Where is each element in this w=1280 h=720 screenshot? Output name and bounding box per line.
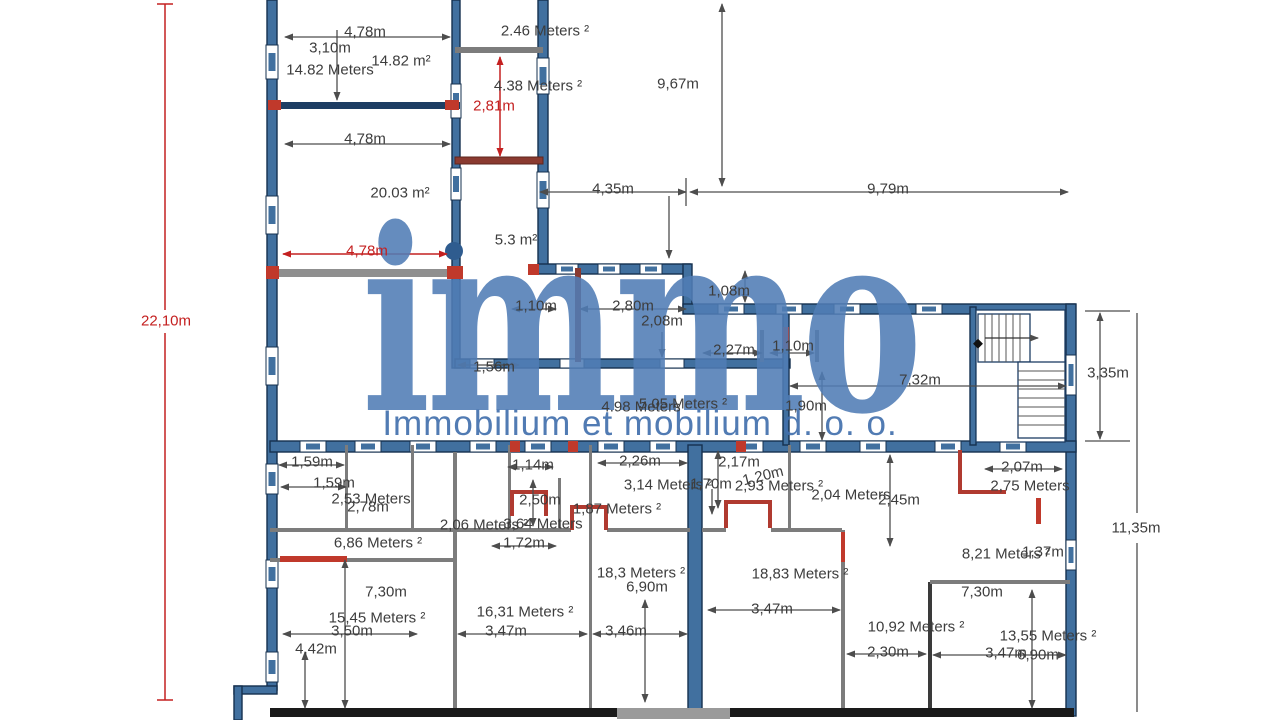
dimension-label: 22,10m bbox=[141, 314, 191, 329]
dimension-label: 9,79m bbox=[867, 182, 909, 197]
dimension-label: 2,07m bbox=[1001, 460, 1043, 475]
dimension-label: 1,72m bbox=[503, 536, 545, 551]
dimension-label: 2,26m bbox=[619, 454, 661, 469]
dimension-label: 2,81m bbox=[473, 99, 515, 114]
dimension-label: 7,30m bbox=[961, 585, 1003, 600]
dimension-label: 7,30m bbox=[365, 585, 407, 600]
dimension-label: 2,08m bbox=[641, 314, 683, 329]
dimension-label: 13,55 Meters ² bbox=[1000, 629, 1097, 644]
dimension-label: 3,47m bbox=[485, 624, 527, 639]
dimension-label: 1,59m bbox=[291, 455, 333, 470]
dimension-label: 2,75 Meters bbox=[990, 479, 1069, 494]
dimension-label: 2,27m bbox=[713, 343, 755, 358]
dimension-label: 18,83 Meters ² bbox=[752, 567, 849, 582]
dimension-label: 2,30m bbox=[867, 645, 909, 660]
dimension-label: 9,67m bbox=[657, 77, 699, 92]
dimension-label: 2,78m bbox=[347, 500, 389, 515]
measurement-labels: 4,78m3,10m14.82 m²14.82 Meters2.46 Meter… bbox=[0, 0, 1280, 720]
dimension-label: 7,32m bbox=[899, 373, 941, 388]
dimension-label: 11,35m bbox=[1112, 521, 1161, 536]
dimension-label: 3,47m bbox=[751, 602, 793, 617]
dimension-label: 6,90m bbox=[1017, 648, 1059, 663]
dimension-label: 4,78m bbox=[346, 244, 388, 259]
dimension-label: 1,70m bbox=[690, 477, 732, 492]
dimension-label: 1,37m bbox=[1022, 545, 1064, 560]
dimension-label: 14.82 m² bbox=[371, 54, 430, 69]
dimension-label: 1,56m bbox=[473, 360, 515, 375]
dimension-label: 3,50m bbox=[331, 624, 373, 639]
dimension-label: 5.3 m² bbox=[495, 233, 538, 248]
dimension-label: 6,86 Meters ² bbox=[334, 536, 422, 551]
dimension-label: 14.82 Meters bbox=[286, 63, 374, 78]
dimension-label: 1,90m bbox=[785, 399, 827, 414]
dimension-label: 3,46m bbox=[605, 624, 647, 639]
dimension-label: 2,45m bbox=[878, 493, 920, 508]
dimension-label: 20.03 m² bbox=[370, 186, 429, 201]
dimension-label: 10,92 Meters ² bbox=[868, 620, 965, 635]
dimension-label: 2,17m bbox=[718, 455, 760, 470]
dimension-label: 4,35m bbox=[592, 182, 634, 197]
dimension-label: 3,35m bbox=[1087, 366, 1129, 381]
dimension-label: 4,78m bbox=[344, 132, 386, 147]
dimension-label: 1,10m bbox=[772, 339, 814, 354]
dimension-label: 1,08m bbox=[708, 284, 750, 299]
dimension-label: 6,90m bbox=[626, 580, 668, 595]
dimension-label: 3,64 Meters bbox=[503, 517, 582, 532]
dimension-label: 1,14m bbox=[512, 458, 554, 473]
dimension-label: 1,59m bbox=[313, 476, 355, 491]
dimension-label: 2,80m bbox=[612, 299, 654, 314]
dimension-label: 1,10m bbox=[515, 299, 557, 314]
dimension-label: 3,10m bbox=[309, 41, 351, 56]
floor-plan-page: immo Immobilium et mobilium d. o. o. 4,7… bbox=[0, 0, 1280, 720]
dimension-label: 2.46 Meters ² bbox=[501, 24, 589, 39]
dimension-label: 16,31 Meters ² bbox=[477, 605, 574, 620]
dimension-label: 4,42m bbox=[295, 642, 337, 657]
dimension-label: 4.38 Meters ² bbox=[494, 79, 582, 94]
dimension-label: 4,78m bbox=[344, 25, 386, 40]
dimension-label: 1,87 Meters ² bbox=[573, 502, 661, 517]
dimension-label: 2,50m bbox=[519, 493, 561, 508]
dimension-label: 5.05 Meters ² bbox=[639, 397, 727, 412]
